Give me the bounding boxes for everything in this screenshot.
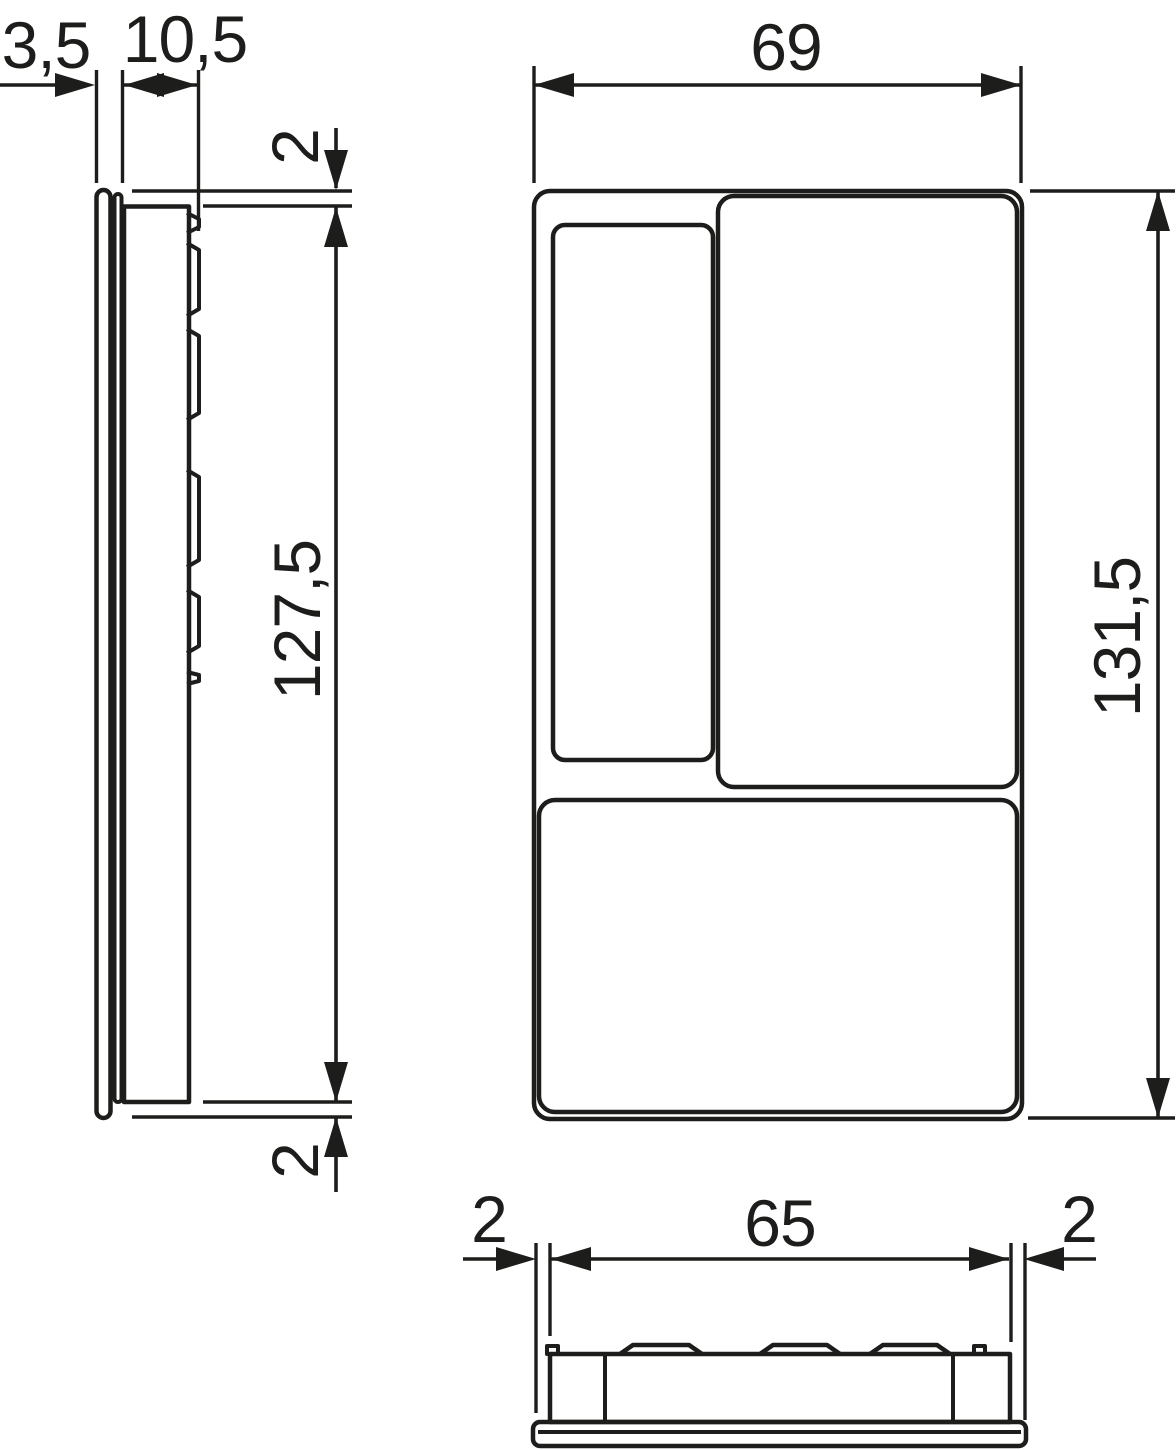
dim-label-height: 131,5 — [1080, 557, 1154, 717]
side-body-outline — [124, 207, 189, 1103]
front-upper-rocker-outline — [718, 196, 1017, 787]
dim-label-width: 69 — [750, 10, 821, 84]
arrowhead — [1024, 1247, 1064, 1271]
dim-label-bottom-offset: 2 — [258, 1143, 332, 1179]
bottom-view-dimensions: 2 65 2 — [463, 1182, 1097, 1420]
front-frame-outline — [534, 191, 1022, 1119]
arrowhead — [324, 207, 348, 247]
side-frame-plate-outline — [97, 190, 111, 1118]
dim-label-right-offset: 2 — [1061, 1182, 1097, 1256]
bottom-clip-nub — [974, 1346, 985, 1354]
arrowhead — [324, 1062, 348, 1102]
bottom-clip-nub — [547, 1346, 558, 1354]
arrowhead — [1146, 1078, 1170, 1118]
dim-label-body-height: 127,5 — [260, 540, 334, 700]
bottom-body-outline — [550, 1354, 1010, 1422]
arrowhead — [1146, 191, 1170, 231]
arrowhead — [157, 73, 197, 97]
front-lower-rocker-outline — [539, 800, 1017, 1112]
arrowhead — [969, 1247, 1009, 1271]
arrowhead — [981, 73, 1021, 97]
arrowhead — [551, 1247, 591, 1271]
dim-label-body-depth: 10,5 — [123, 2, 247, 76]
side-view — [97, 190, 200, 1118]
front-view-dimensions: 69 131,5 — [534, 10, 1175, 1118]
side-rocker-face-outline — [115, 194, 122, 1102]
dim-label-body-width: 65 — [744, 1186, 815, 1260]
technical-drawing-page: 3,5 10,5 2 127,5 2 — [0, 0, 1176, 1450]
front-label-window-outline — [553, 225, 713, 760]
arrowhead — [534, 73, 574, 97]
bottom-view — [533, 1345, 1026, 1446]
dim-label-top-offset: 2 — [258, 129, 332, 165]
dim-label-left-offset: 2 — [471, 1182, 507, 1256]
technical-drawing: 3,5 10,5 2 127,5 2 — [0, 0, 1176, 1450]
front-view — [534, 191, 1022, 1119]
dim-label-front-thickness: 3,5 — [2, 8, 91, 82]
side-view-dimensions: 3,5 10,5 2 127,5 2 — [0, 2, 352, 1192]
